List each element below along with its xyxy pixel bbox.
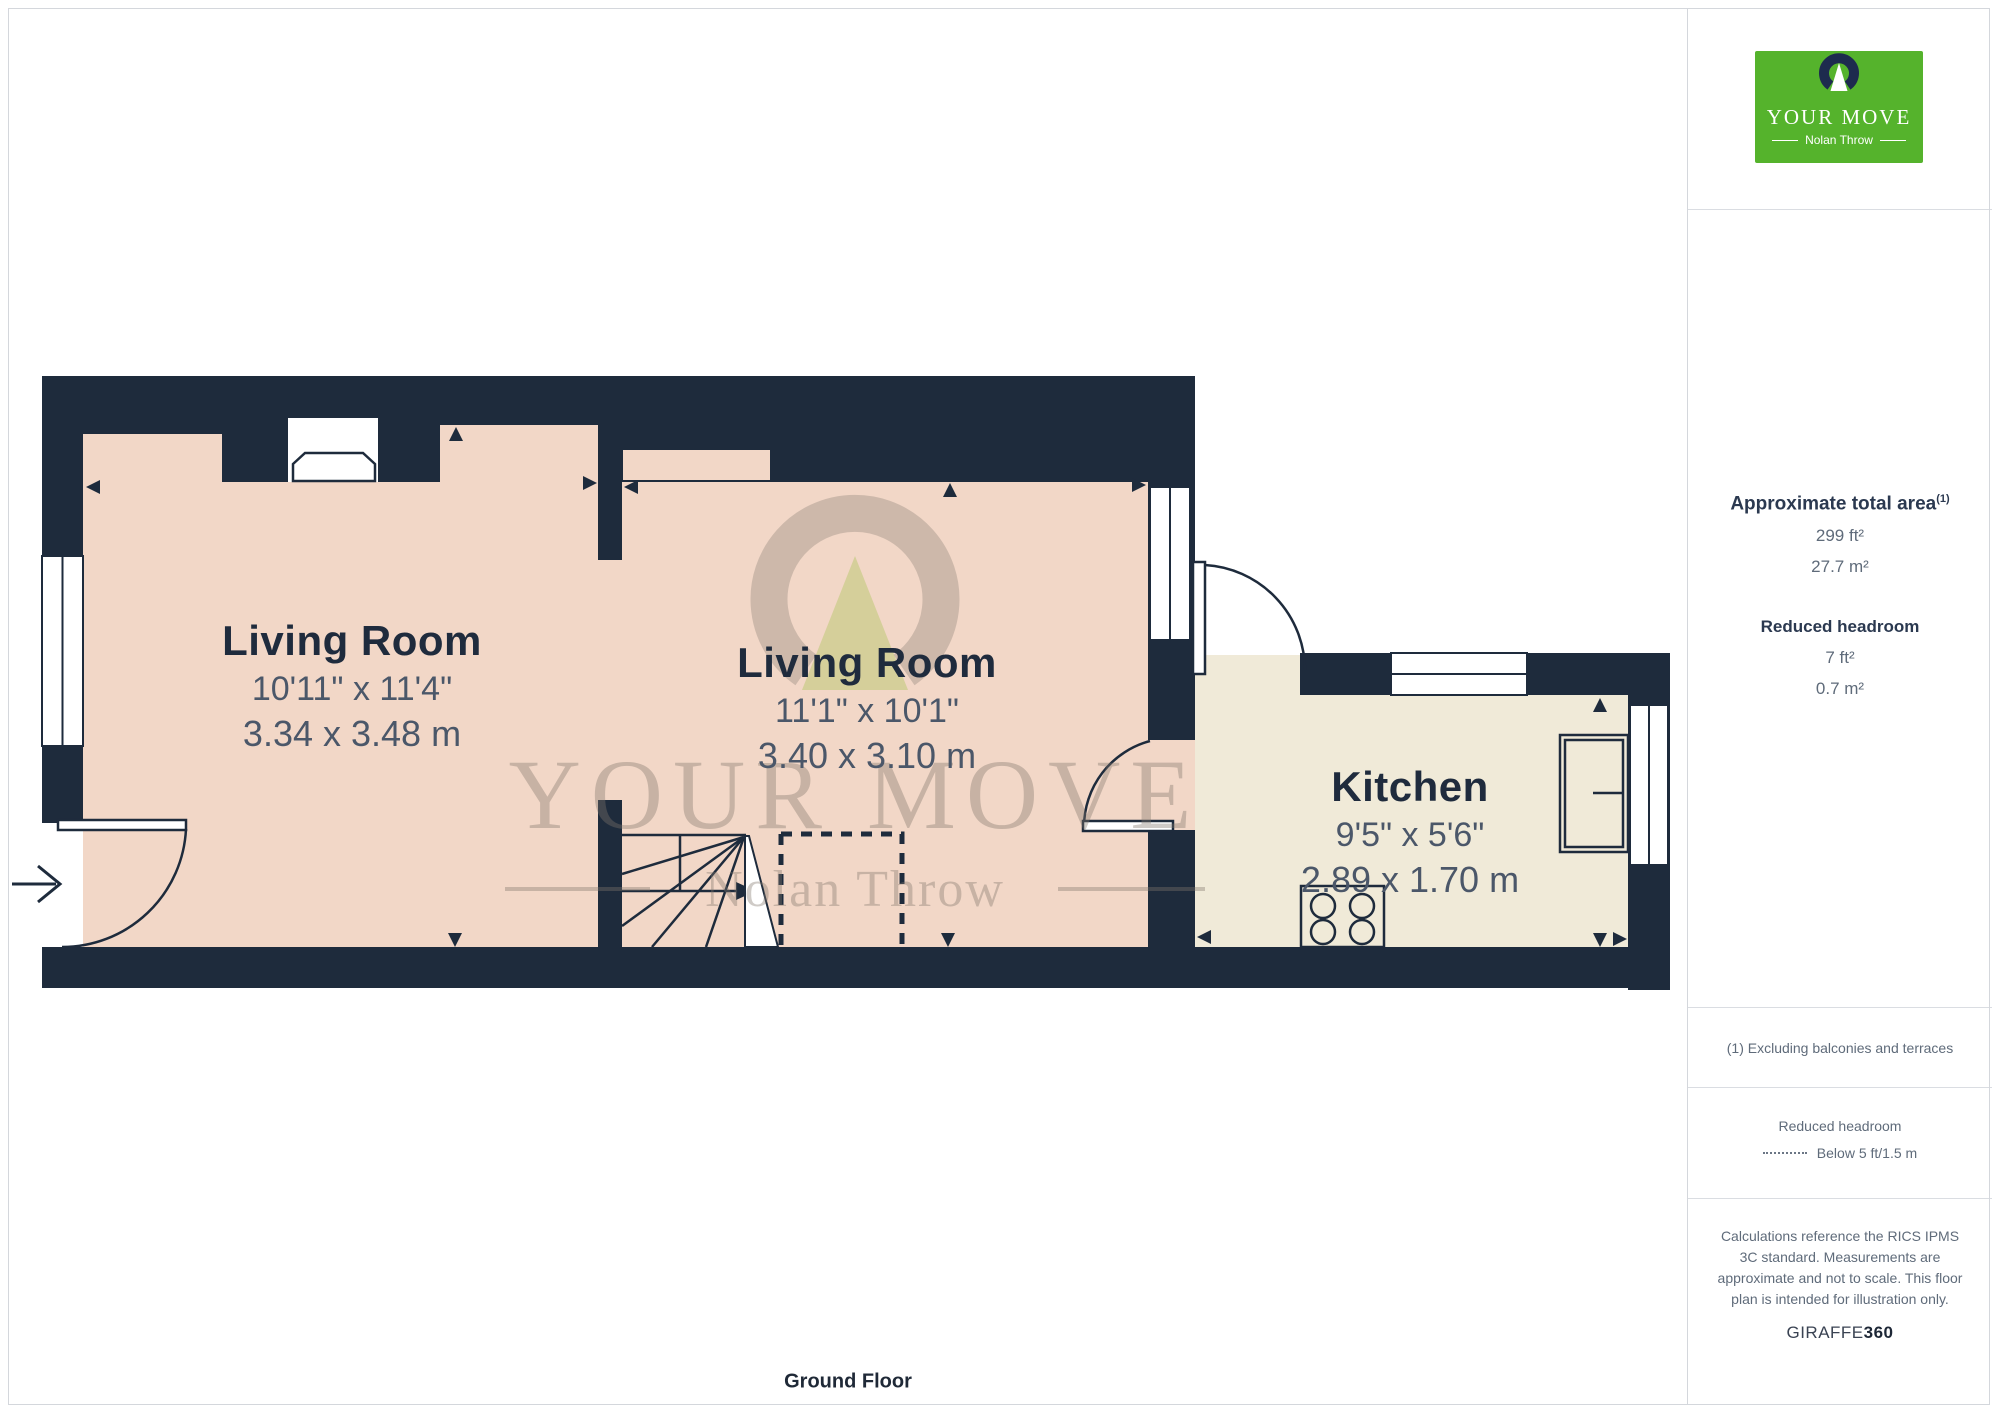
logo-sub-text: Nolan Throw (1805, 133, 1873, 147)
reduced-headroom-dash-icon (1763, 1152, 1807, 1154)
room-name: Living Room (222, 616, 482, 666)
logo-brand-text: YOUR MOVE (1767, 105, 1912, 130)
logo-section: YOUR MOVE Nolan Throw (1688, 8, 1992, 210)
giraffe360-brand: GIRAFFE360 (1688, 1323, 1992, 1343)
disclaimer-text: Calculations reference the RICS IPMS 3C … (1711, 1226, 1969, 1310)
bottom-wall (42, 947, 1670, 988)
room-size-metric: 3.40 x 3.10 m (737, 734, 997, 778)
agency-logo: YOUR MOVE Nolan Throw (1755, 51, 1923, 163)
logo-dash-left (1772, 140, 1798, 141)
area-section: Approximate total area(1) 299 ft² 27.7 m… (1688, 210, 1992, 1008)
legend-row: Below 5 ft/1.5 m (1688, 1145, 1992, 1161)
area-value-m: 27.7 m² (1688, 557, 1992, 577)
floor-title: Ground Floor (784, 1371, 912, 1394)
room-name: Living Room (737, 638, 997, 688)
disclaimer-section: Calculations reference the RICS IPMS 3C … (1688, 1199, 1992, 1405)
legend-section: Reduced headroom Below 5 ft/1.5 m (1688, 1088, 1992, 1199)
logo-sub-row: Nolan Throw (1772, 133, 1906, 147)
window-kitchen-top (1391, 653, 1527, 695)
reduced-headroom-title: Reduced headroom (1688, 617, 1992, 637)
fireplace (288, 418, 378, 482)
room-size-imperial: 9'5" x 5'6" (1301, 812, 1519, 858)
area-title-superscript: (1) (1936, 493, 1949, 505)
watermark-sub-text: Nolan Throw (705, 861, 1005, 918)
giraffe-text: GIRAFFE (1786, 1323, 1863, 1342)
room-label-living-room-1: Living Room 10'11" x 11'4" 3.34 x 3.48 m (222, 616, 482, 756)
logo-dash-right (1880, 140, 1906, 141)
room-label-living-room-2: Living Room 11'1" x 10'1" 3.40 x 3.10 m (737, 638, 997, 778)
your-move-omega-icon (1810, 51, 1868, 103)
reduced-value-m: 0.7 m² (1688, 679, 1992, 699)
info-sidebar: YOUR MOVE Nolan Throw Approximate total … (1687, 8, 1992, 1405)
room-name: Kitchen (1301, 762, 1519, 812)
reduced-value-ft: 7 ft² (1688, 648, 1992, 668)
area-summary: Approximate total area(1) 299 ft² 27.7 m… (1688, 493, 1992, 699)
window-left-wall (42, 556, 83, 746)
room-size-imperial: 10'11" x 11'4" (222, 666, 482, 712)
footnote-section: (1) Excluding balconies and terraces (1688, 1008, 1992, 1088)
window-kitchen-right (1630, 705, 1668, 865)
room-label-kitchen: Kitchen 9'5" x 5'6" 2.89 x 1.70 m (1301, 762, 1519, 902)
room-size-metric: 3.34 x 3.48 m (222, 712, 482, 756)
floorplan-page: YOUR MOVE Nolan Throw Living Room 10'11"… (0, 0, 2000, 1414)
footnote-text: (1) Excluding balconies and terraces (1727, 1040, 1953, 1056)
legend-title: Reduced headroom (1688, 1118, 1992, 1134)
area-title: Approximate total area(1) (1688, 493, 1992, 515)
legend-item-text: Below 5 ft/1.5 m (1817, 1145, 1917, 1161)
window-middle-room-right (1150, 487, 1190, 640)
area-title-text: Approximate total area (1730, 493, 1936, 514)
room-size-imperial: 11'1" x 10'1" (737, 688, 997, 734)
wall-recess (622, 449, 771, 481)
giraffe-360-text: 360 (1864, 1323, 1894, 1342)
room-size-metric: 2.89 x 1.70 m (1301, 858, 1519, 902)
area-value-ft: 299 ft² (1688, 526, 1992, 546)
